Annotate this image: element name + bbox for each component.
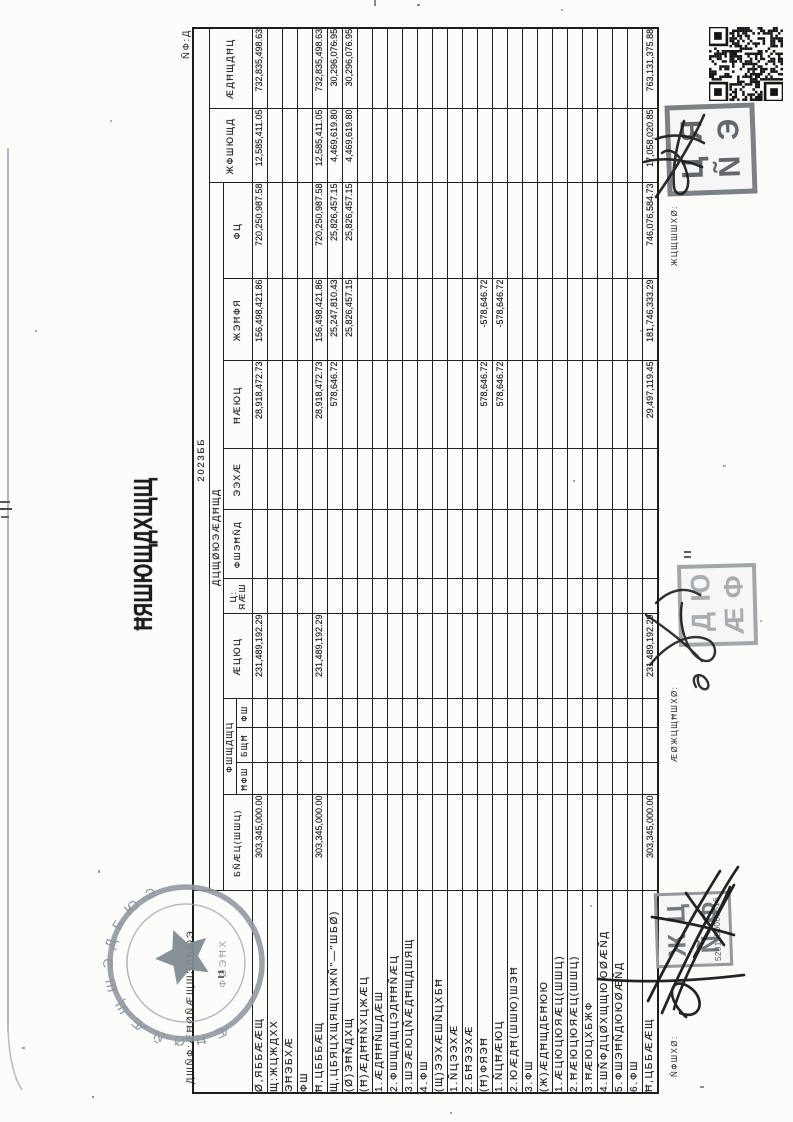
svg-text:ÆĦØÑÆЩШЭДБЮЭ: ÆĦØÑÆЩШЭДБЮЭ bbox=[100, 880, 233, 1049]
svg-text:ФØЭĦХ: ФØЭĦХ bbox=[218, 939, 229, 988]
